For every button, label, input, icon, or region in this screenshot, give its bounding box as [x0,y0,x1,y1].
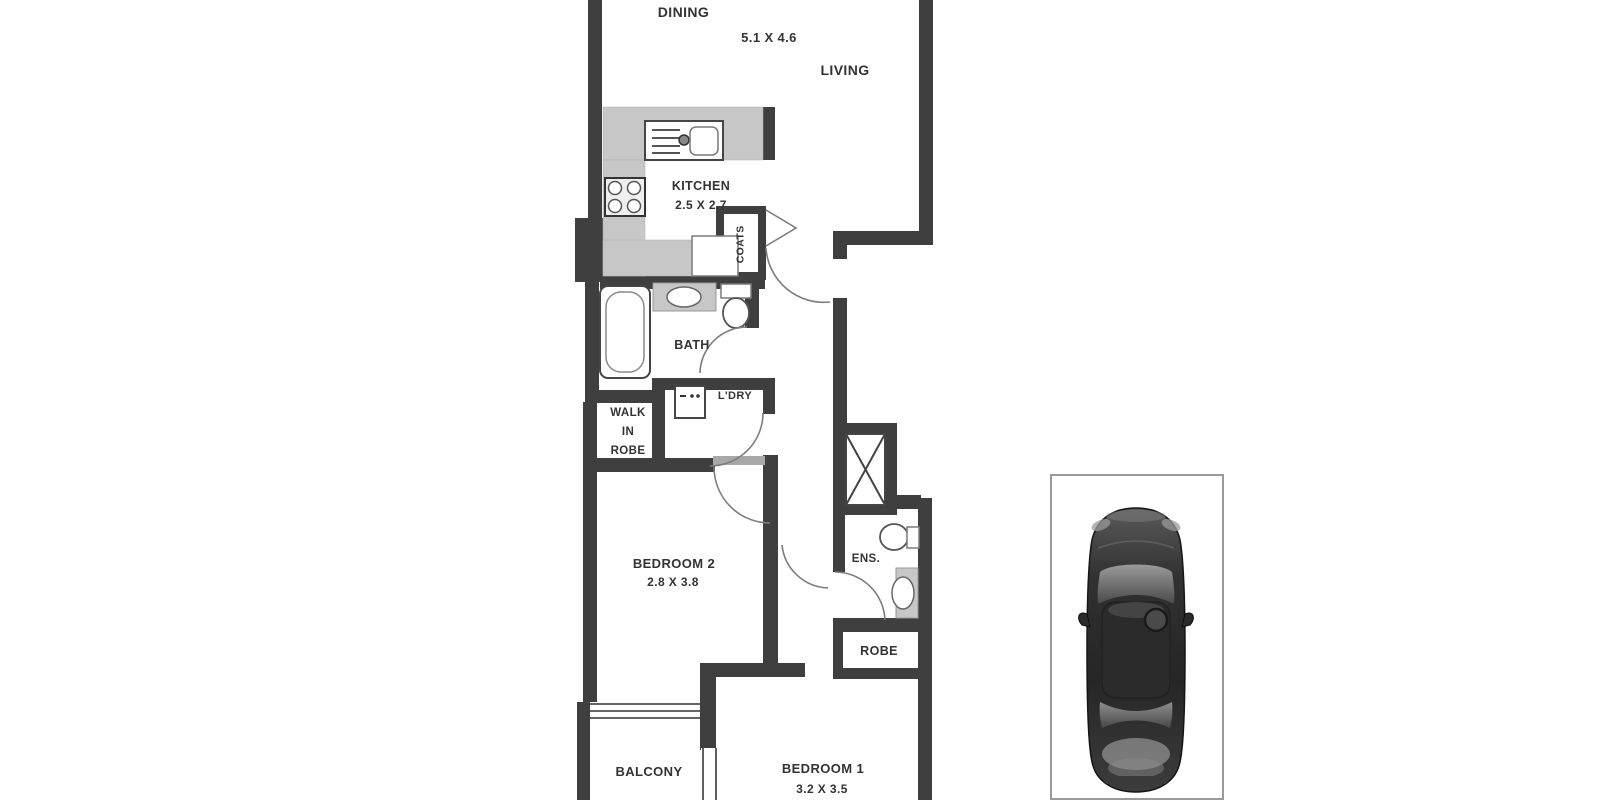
room-label-kitchen: KITCHEN [656,179,746,194]
entry-door-arc [766,248,830,302]
room-label-dining: DINING [636,4,731,21]
floor-plan-page: DINING 5.1 X 4.6 LIVING KITCHEN 2.5 X 2.… [0,0,1600,800]
bath-basin-icon [653,283,716,311]
washer-icon [675,386,705,418]
room-label-living: LIVING [800,62,890,79]
room-dims-bedroom2: 2.8 X 3.8 [623,575,723,589]
bath-toilet-icon [721,284,751,328]
room-label-robe: ROBE [850,644,908,659]
coats-bifold-door [766,210,796,246]
shaft-cross-icon [846,434,885,505]
room-label-bath: BATH [659,338,725,353]
bedroom1-door-arc [782,545,828,588]
room-dims-kitchen: 2.5 X 2.7 [658,198,744,212]
room-label-balcony: BALCONY [604,764,694,780]
stove-icon [605,178,645,216]
ensuite-basin-icon [892,568,918,618]
ensuite-door-arc [835,572,885,620]
bathtub-icon [600,286,650,378]
room-label-ensuite: ENS. [840,553,892,567]
ensuite-toilet-icon [880,524,919,550]
bedroom2-door-arc [714,467,770,523]
room-dims-dining: 5.1 X 4.6 [719,30,819,46]
room-label-bedroom2: BEDROOM 2 [614,556,734,572]
room-label-bedroom1: BEDROOM 1 [763,761,883,777]
sink-icon [645,121,723,160]
floor-plan-drawing [0,0,1600,800]
balcony-door-window [701,748,718,800]
dishwasher-icon [692,236,738,276]
car-top-view-icon [1079,508,1194,792]
room-dims-bedroom1: 3.2 X 3.5 [772,782,872,796]
room-label-laundry: L'DRY [706,390,764,403]
room-label-coats: COATS [735,216,748,272]
balcony-window [590,703,700,719]
room-label-walk-in-robe: WALK IN ROBE [596,404,660,461]
